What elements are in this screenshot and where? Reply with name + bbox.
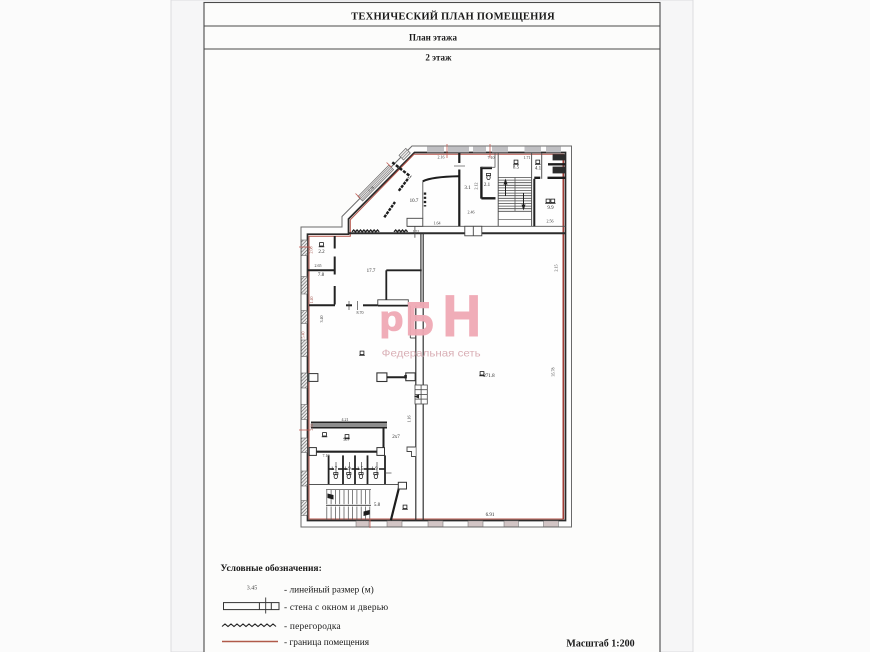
svg-text:2.16: 2.16 xyxy=(438,155,445,160)
svg-text:2 этаж: 2 этаж xyxy=(425,53,452,63)
svg-text:2.2: 2.2 xyxy=(318,250,325,255)
svg-text:Б: Б xyxy=(406,292,434,345)
svg-text:7.8: 7.8 xyxy=(318,273,325,278)
svg-text:3.1: 3.1 xyxy=(464,186,471,191)
svg-text:- граница помещения: - граница помещения xyxy=(284,638,370,648)
svg-text:1.9: 1.9 xyxy=(344,467,351,472)
svg-text:2.12: 2.12 xyxy=(474,183,479,190)
svg-text:2.15: 2.15 xyxy=(554,265,559,272)
svg-text:35.78: 35.78 xyxy=(551,368,556,377)
svg-text:9.7: 9.7 xyxy=(343,438,350,443)
svg-text:1.5: 1.5 xyxy=(357,467,364,472)
svg-text:Федеральная сеть: Федеральная сеть xyxy=(382,348,482,360)
svg-text:10.7: 10.7 xyxy=(410,199,419,204)
svg-text:1.40: 1.40 xyxy=(309,297,314,304)
svg-text:2.92: 2.92 xyxy=(309,424,314,431)
svg-text:Масштаб 1:200: Масштаб 1:200 xyxy=(566,639,634,650)
svg-text:Н: Н xyxy=(443,284,482,349)
svg-text:1.64: 1.64 xyxy=(434,221,441,226)
svg-text:271.8: 271.8 xyxy=(483,374,495,379)
svg-text:1.7: 1.7 xyxy=(331,467,338,472)
svg-text:8.5: 8.5 xyxy=(513,166,520,171)
svg-text:3.45: 3.45 xyxy=(247,586,258,592)
svg-text:4.1: 4.1 xyxy=(535,167,542,172)
svg-text:План этажа: План этажа xyxy=(409,33,457,43)
svg-text:1.52: 1.52 xyxy=(413,230,420,234)
svg-text:4.21: 4.21 xyxy=(342,417,349,422)
svg-text:2.08: 2.08 xyxy=(309,247,314,254)
svg-text:17.7: 17.7 xyxy=(367,269,376,274)
svg-text:5.40: 5.40 xyxy=(301,332,306,339)
svg-text:Условные обозначения:: Условные обозначения: xyxy=(221,563,322,574)
svg-text:- линейный размер (м): - линейный размер (м) xyxy=(284,585,374,596)
svg-text:1.71: 1.71 xyxy=(524,155,531,160)
svg-text:8.70: 8.70 xyxy=(357,310,364,315)
svg-text:6.91: 6.91 xyxy=(486,513,495,518)
svg-text:р: р xyxy=(380,300,404,339)
svg-text:1.9: 1.9 xyxy=(371,467,378,472)
svg-text:2x7: 2x7 xyxy=(392,435,400,440)
svg-text:ТЕХНИЧЕСКИЙ ПЛАН ПОМЕЩЕНИЯ: ТЕХНИЧЕСКИЙ ПЛАН ПОМЕЩЕНИЯ xyxy=(351,10,555,22)
svg-text:1.16: 1.16 xyxy=(407,416,412,423)
svg-text:2.1: 2.1 xyxy=(484,183,491,188)
svg-text:7.10: 7.10 xyxy=(323,453,330,458)
svg-text:2.56: 2.56 xyxy=(547,219,554,224)
svg-text:3.40: 3.40 xyxy=(319,316,324,323)
svg-text:9.9: 9.9 xyxy=(547,206,554,211)
svg-text:2.65: 2.65 xyxy=(315,263,322,268)
svg-text:- стена с окном и дверью: - стена с окном и дверью xyxy=(284,603,388,613)
svg-text:5.8: 5.8 xyxy=(374,503,381,508)
svg-text:2.46: 2.46 xyxy=(468,210,475,215)
svg-text:7.10: 7.10 xyxy=(488,155,495,160)
svg-text:- перегородка: - перегородка xyxy=(284,622,341,632)
